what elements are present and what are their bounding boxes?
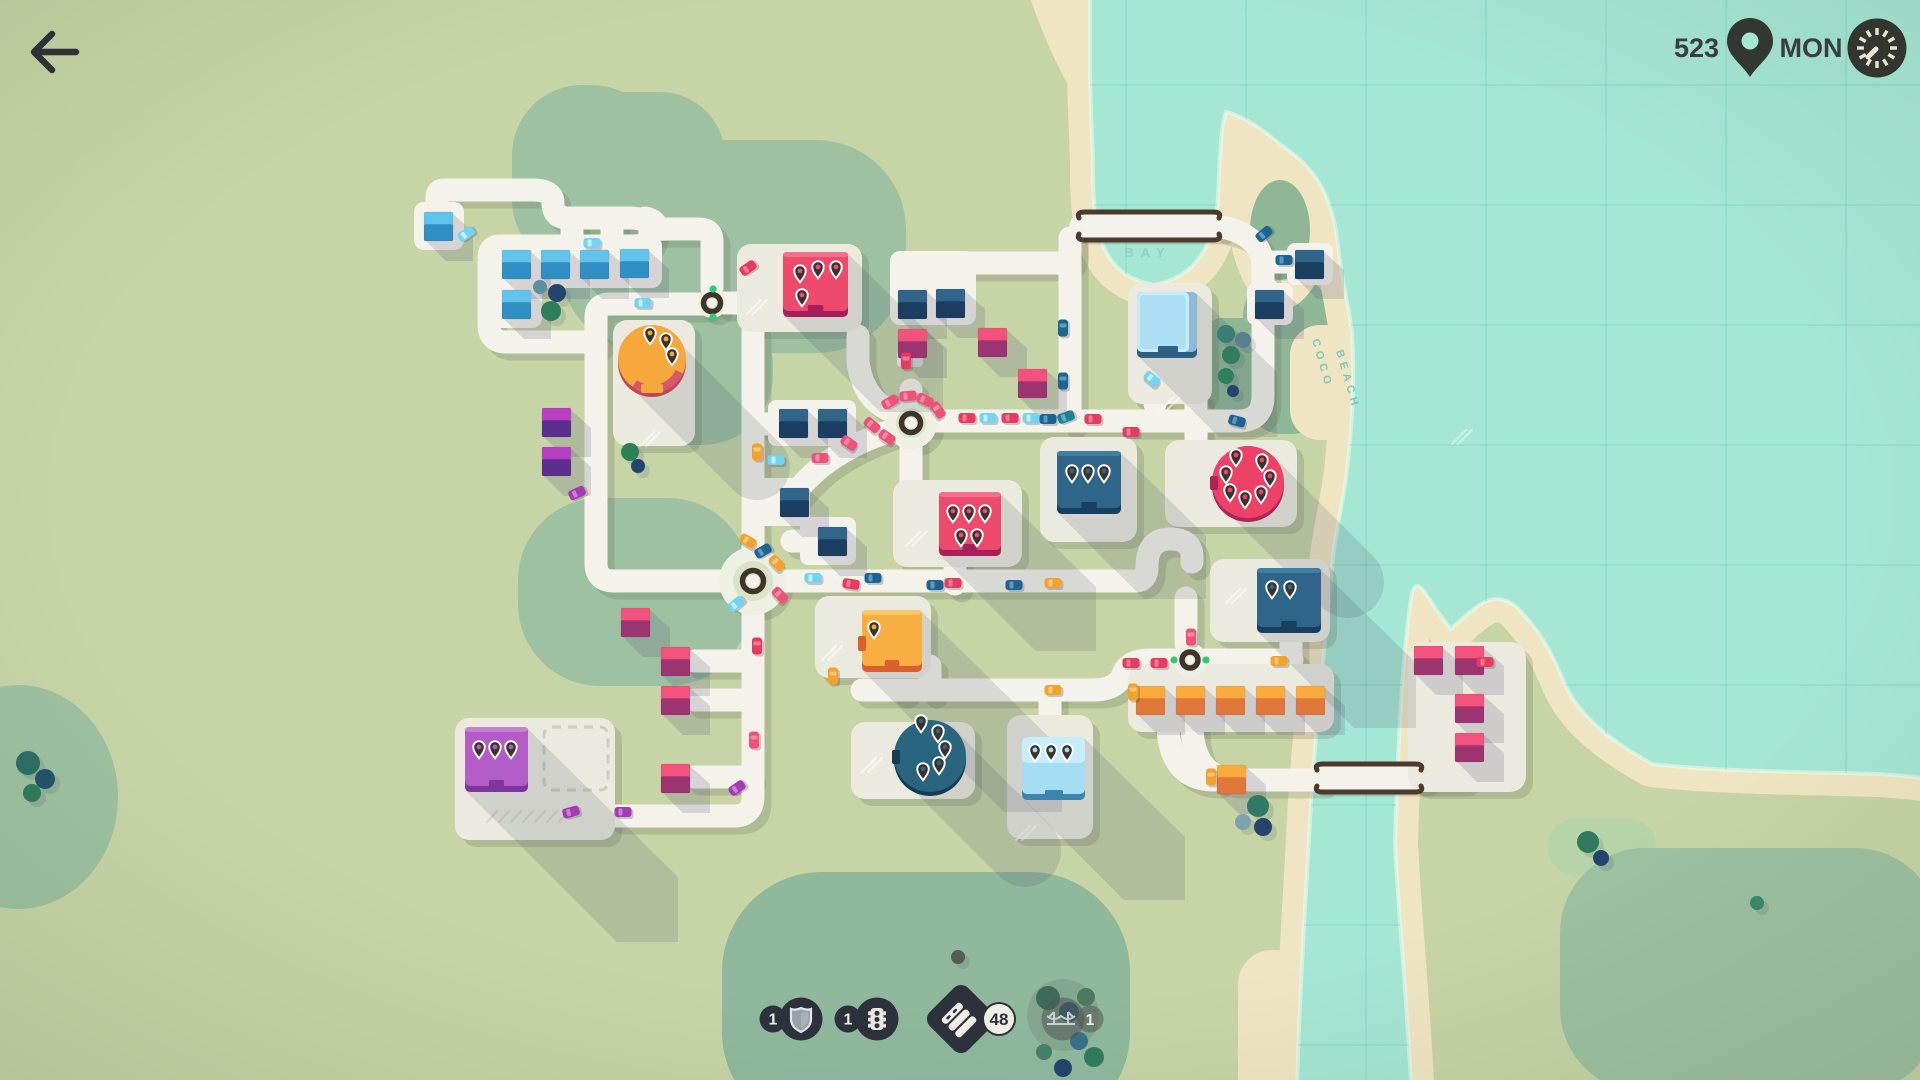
svg-text:1: 1 (769, 1012, 778, 1029)
svg-text:1: 1 (844, 1012, 853, 1029)
svg-text:523: 523 (1674, 33, 1719, 63)
svg-text:MON: MON (1780, 33, 1843, 63)
svg-text:1: 1 (1086, 1012, 1095, 1029)
svg-text:48: 48 (990, 1010, 1009, 1029)
